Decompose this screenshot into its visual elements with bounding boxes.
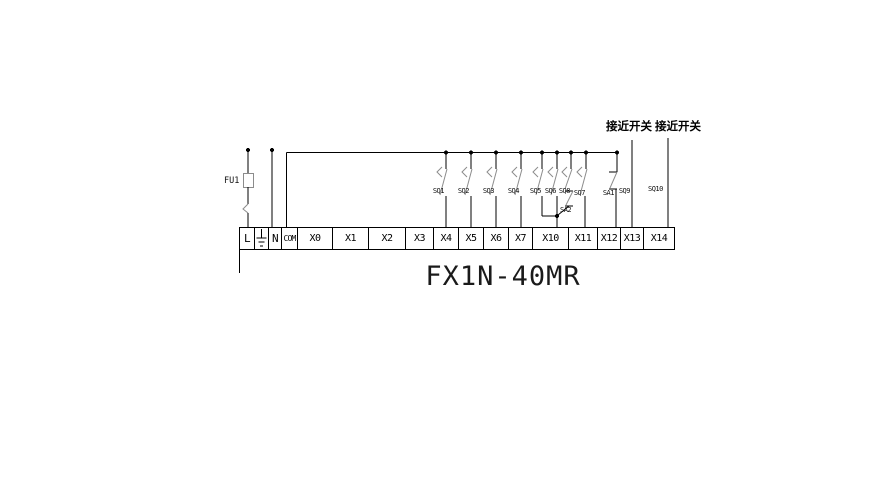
- terminal-n-label: N: [272, 234, 278, 244]
- sa2-label: SA2: [560, 206, 577, 215]
- terminal-x6: X6: [483, 227, 509, 250]
- sq8-limit-switch-icon: [562, 153, 572, 189]
- proximity-switch-annotation-2: 接近开关: [654, 119, 702, 134]
- plc-wiring-diagram: FU1 SQ1 SQ2 SQ3 SQ4 SQ5 SQ6 SQ8 SQ7 SA2 …: [0, 0, 876, 481]
- terminal-x5: X5: [458, 227, 484, 250]
- terminal-n: N: [268, 227, 282, 250]
- terminal-x0: X0: [297, 227, 333, 250]
- terminal-x1-label: X1: [345, 234, 356, 244]
- sq6-limit-switch-icon: [548, 153, 558, 216]
- plc-model-title: FX1N-40MR: [420, 261, 586, 292]
- terminal-ground: [254, 227, 269, 250]
- terminal-x2-label: X2: [381, 234, 392, 244]
- terminal-x13-label: X13: [624, 234, 641, 244]
- terminal-l: L: [239, 227, 255, 250]
- terminal-x7: X7: [508, 227, 533, 250]
- n-neutral-wire: [270, 148, 274, 227]
- terminal-x13: X13: [620, 227, 644, 250]
- terminal-x4-label: X4: [440, 234, 451, 244]
- sq10-label: SQ10: [648, 185, 670, 194]
- terminal-x4: X4: [433, 227, 459, 250]
- sq2-label: SQ2: [449, 187, 469, 196]
- terminal-x11-label: X11: [575, 234, 592, 244]
- sq3-label: SQ3: [474, 187, 494, 196]
- terminal-x3-label: X3: [414, 234, 425, 244]
- sq4-label: SQ4: [499, 187, 519, 196]
- terminal-x1: X1: [332, 227, 369, 250]
- sq7-label: SQ7: [570, 189, 585, 198]
- terminal-com-label: COM: [283, 234, 295, 244]
- terminal-x12-label: X12: [601, 234, 618, 244]
- terminal-com: COM: [281, 227, 298, 250]
- sq1-label: SQ1: [424, 187, 444, 196]
- earth-ground-icon: [255, 228, 268, 249]
- terminal-x14-label: X14: [651, 234, 668, 244]
- sq9-label: SQ9: [616, 187, 630, 196]
- terminal-x0-label: X0: [309, 234, 320, 244]
- terminal-x2: X2: [368, 227, 406, 250]
- proximity-switch-annotation-1: 接近开关: [605, 119, 653, 134]
- terminal-x10: X10: [532, 227, 569, 250]
- terminal-x3: X3: [405, 227, 434, 250]
- fuse-icon: [244, 174, 254, 188]
- l-phase-wire: [243, 148, 254, 227]
- x10-junction: [555, 214, 559, 227]
- terminal-x14: X14: [643, 227, 675, 250]
- break-chevron-icon: [243, 204, 248, 213]
- terminal-x10-label: X10: [542, 234, 559, 244]
- terminal-x5-label: X5: [465, 234, 476, 244]
- terminal-x11: X11: [568, 227, 598, 250]
- terminal-l-label: L: [244, 234, 250, 244]
- sq6-label: SQ6: [542, 187, 556, 196]
- sa1-label: SA1: [600, 189, 614, 198]
- sq5-label: SQ5: [527, 187, 541, 196]
- fuse-label: FU1: [224, 176, 239, 186]
- sq8-label: SQ8: [556, 187, 570, 196]
- terminal-x6-label: X6: [490, 234, 501, 244]
- terminal-x7-label: X7: [515, 234, 526, 244]
- terminal-x12: X12: [597, 227, 621, 250]
